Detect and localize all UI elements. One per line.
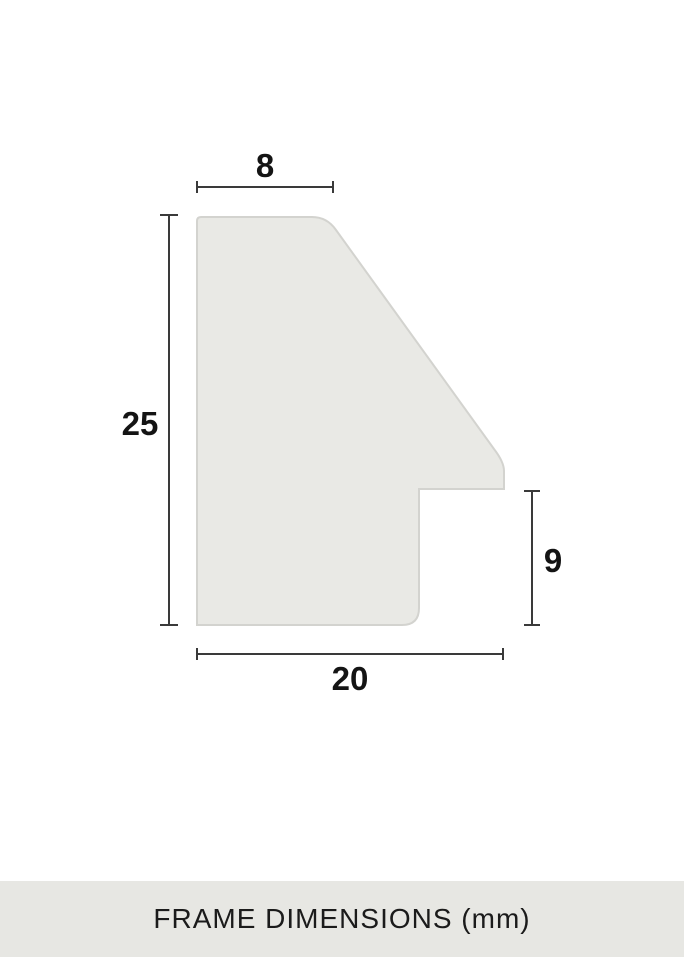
frame-dimensions-page: 8 25 9 20 FRAME DIMENSIONS (mm) — [0, 0, 684, 957]
dimension-bottom-line — [197, 648, 503, 660]
dimension-right-line — [524, 491, 540, 625]
profile-diagram-svg: 8 25 9 20 — [0, 0, 684, 881]
dimension-label-right: 9 — [544, 542, 562, 579]
frame-profile-shape — [197, 217, 504, 625]
dimension-label-left: 25 — [122, 405, 159, 442]
dimension-left-line — [160, 215, 178, 625]
frame-profile-diagram: 8 25 9 20 — [0, 0, 684, 881]
dimension-left-height: 25 — [122, 215, 178, 625]
dimension-top-width: 8 — [197, 147, 333, 193]
dimension-right-height: 9 — [524, 491, 562, 625]
dimension-label-top: 8 — [256, 147, 274, 184]
caption-text: FRAME DIMENSIONS (mm) — [153, 903, 530, 935]
dimension-bottom-width: 20 — [197, 648, 503, 697]
caption-bar: FRAME DIMENSIONS (mm) — [0, 881, 684, 957]
dimension-label-bottom: 20 — [332, 660, 369, 697]
